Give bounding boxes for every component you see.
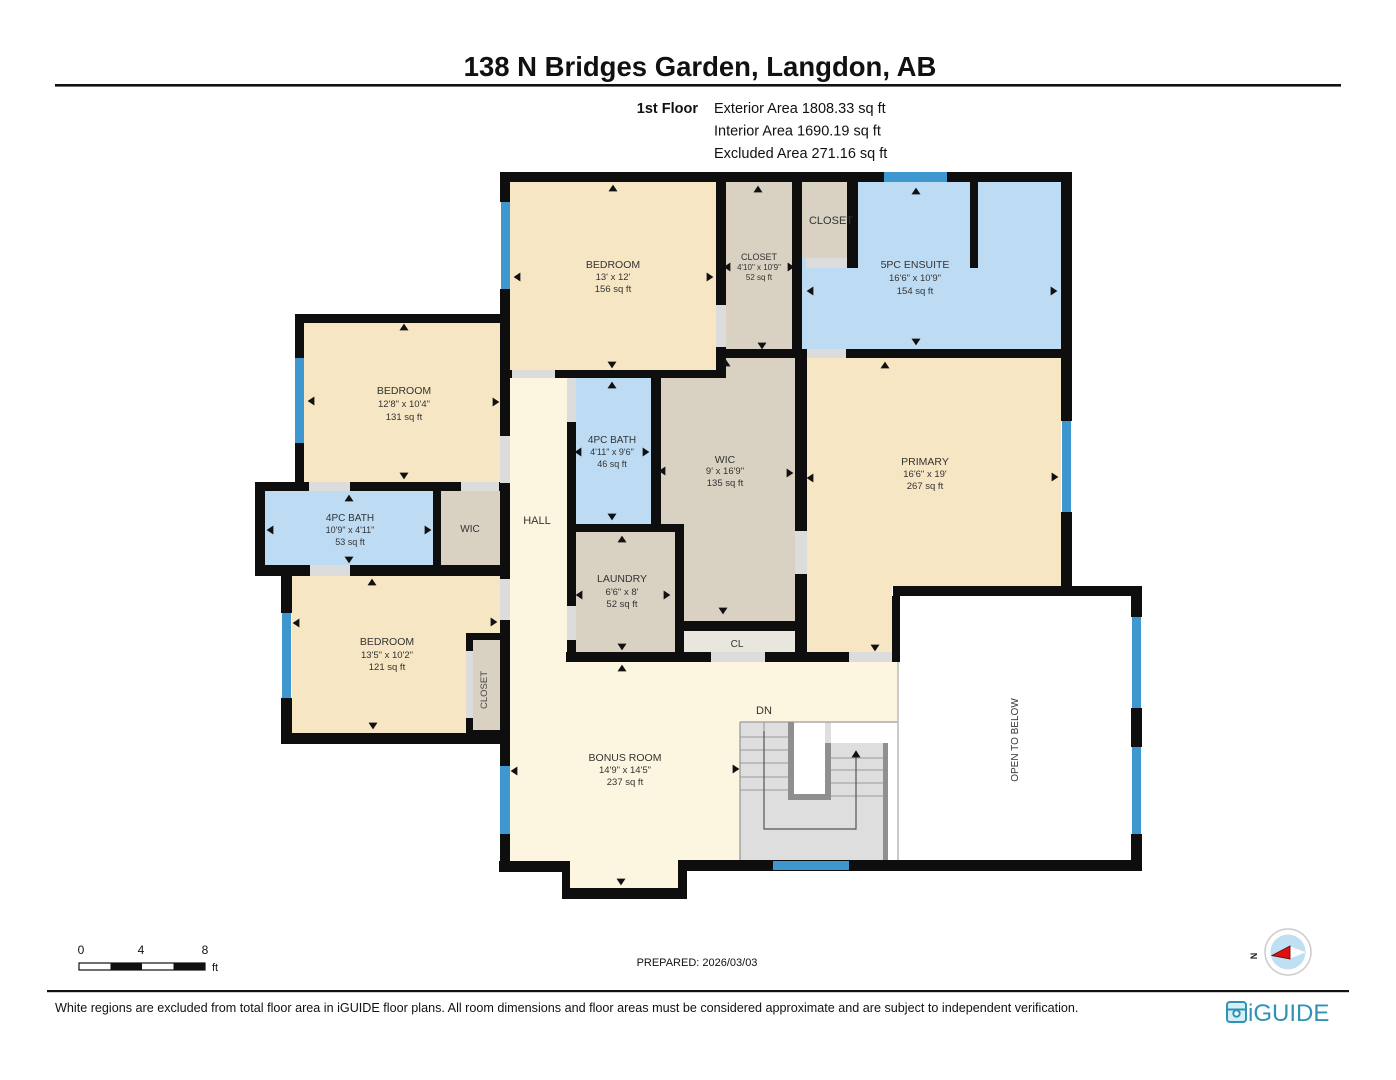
svg-text:0: 0	[78, 943, 85, 957]
svg-text:CL: CL	[731, 639, 744, 650]
svg-text:8: 8	[202, 943, 209, 957]
svg-text:DN: DN	[756, 705, 772, 717]
svg-text:267 sq ft: 267 sq ft	[907, 481, 944, 492]
svg-text:HALL: HALL	[523, 515, 551, 527]
svg-text:Excluded Area 271.16 sq ft: Excluded Area 271.16 sq ft	[714, 146, 887, 162]
svg-text:12'8" x 10'4": 12'8" x 10'4"	[378, 399, 430, 410]
svg-text:237 sq ft: 237 sq ft	[607, 777, 644, 788]
svg-text:53 sq ft: 53 sq ft	[335, 537, 365, 547]
svg-text:154 sq ft: 154 sq ft	[897, 286, 934, 297]
svg-text:9' x 16'9": 9' x 16'9"	[706, 466, 744, 477]
svg-text:4PC BATH: 4PC BATH	[326, 513, 374, 524]
svg-text:135 sq ft: 135 sq ft	[707, 478, 744, 489]
svg-text:52 sq ft: 52 sq ft	[746, 273, 773, 282]
svg-text:CLOSET: CLOSET	[479, 671, 490, 709]
svg-text:BONUS ROOM: BONUS ROOM	[589, 752, 662, 764]
svg-text:10'9" x 4'11": 10'9" x 4'11"	[326, 525, 375, 535]
svg-text:PREPARED: 2026/03/03: PREPARED: 2026/03/03	[637, 957, 758, 969]
svg-text:CLOSET: CLOSET	[741, 252, 778, 262]
svg-text:1st Floor: 1st Floor	[637, 101, 699, 117]
svg-text:13' x 12': 13' x 12'	[596, 272, 631, 283]
svg-text:Exterior Area 1808.33 sq ft: Exterior Area 1808.33 sq ft	[714, 101, 886, 117]
svg-text:16'6" x 19': 16'6" x 19'	[903, 469, 947, 480]
svg-text:4PC BATH: 4PC BATH	[588, 435, 636, 446]
svg-text:LAUNDRY: LAUNDRY	[597, 573, 647, 585]
svg-text:121 sq ft: 121 sq ft	[369, 662, 406, 673]
svg-text:4'10" x 10'9": 4'10" x 10'9"	[737, 263, 781, 272]
svg-text:131 sq ft: 131 sq ft	[386, 412, 423, 423]
svg-text:BEDROOM: BEDROOM	[360, 636, 414, 648]
svg-text:ft: ft	[212, 962, 218, 974]
svg-text:N: N	[1249, 953, 1259, 960]
svg-text:4'11" x 9'6": 4'11" x 9'6"	[590, 447, 634, 457]
svg-text:BEDROOM: BEDROOM	[377, 385, 431, 397]
svg-text:OPEN TO BELOW: OPEN TO BELOW	[1010, 698, 1021, 782]
svg-text:16'6" x 10'9": 16'6" x 10'9"	[889, 273, 941, 284]
svg-text:13'5" x 10'2": 13'5" x 10'2"	[361, 650, 413, 661]
svg-text:5PC ENSUITE: 5PC ENSUITE	[881, 259, 950, 271]
svg-text:52 sq ft: 52 sq ft	[606, 599, 638, 610]
svg-text:WIC: WIC	[460, 524, 479, 535]
svg-text:Interior Area 1690.19 sq ft: Interior Area 1690.19 sq ft	[714, 124, 881, 140]
svg-text:46 sq ft: 46 sq ft	[597, 459, 627, 469]
svg-text:CLOSET: CLOSET	[809, 215, 853, 227]
svg-text:156 sq ft: 156 sq ft	[595, 284, 632, 295]
svg-text:4: 4	[138, 943, 145, 957]
svg-text:PRIMARY: PRIMARY	[901, 456, 949, 468]
svg-text:14'9" x 14'5": 14'9" x 14'5"	[599, 765, 651, 776]
svg-text:6'6" x 8': 6'6" x 8'	[606, 587, 639, 598]
svg-text:iGUIDE: iGUIDE	[1248, 1000, 1329, 1027]
svg-text:WIC: WIC	[715, 454, 736, 466]
svg-text:138 N Bridges Garden, Langdon,: 138 N Bridges Garden, Langdon, AB	[464, 51, 937, 82]
svg-text:White regions are excluded fro: White regions are excluded from total fl…	[55, 1001, 1078, 1015]
svg-text:BEDROOM: BEDROOM	[586, 259, 640, 271]
